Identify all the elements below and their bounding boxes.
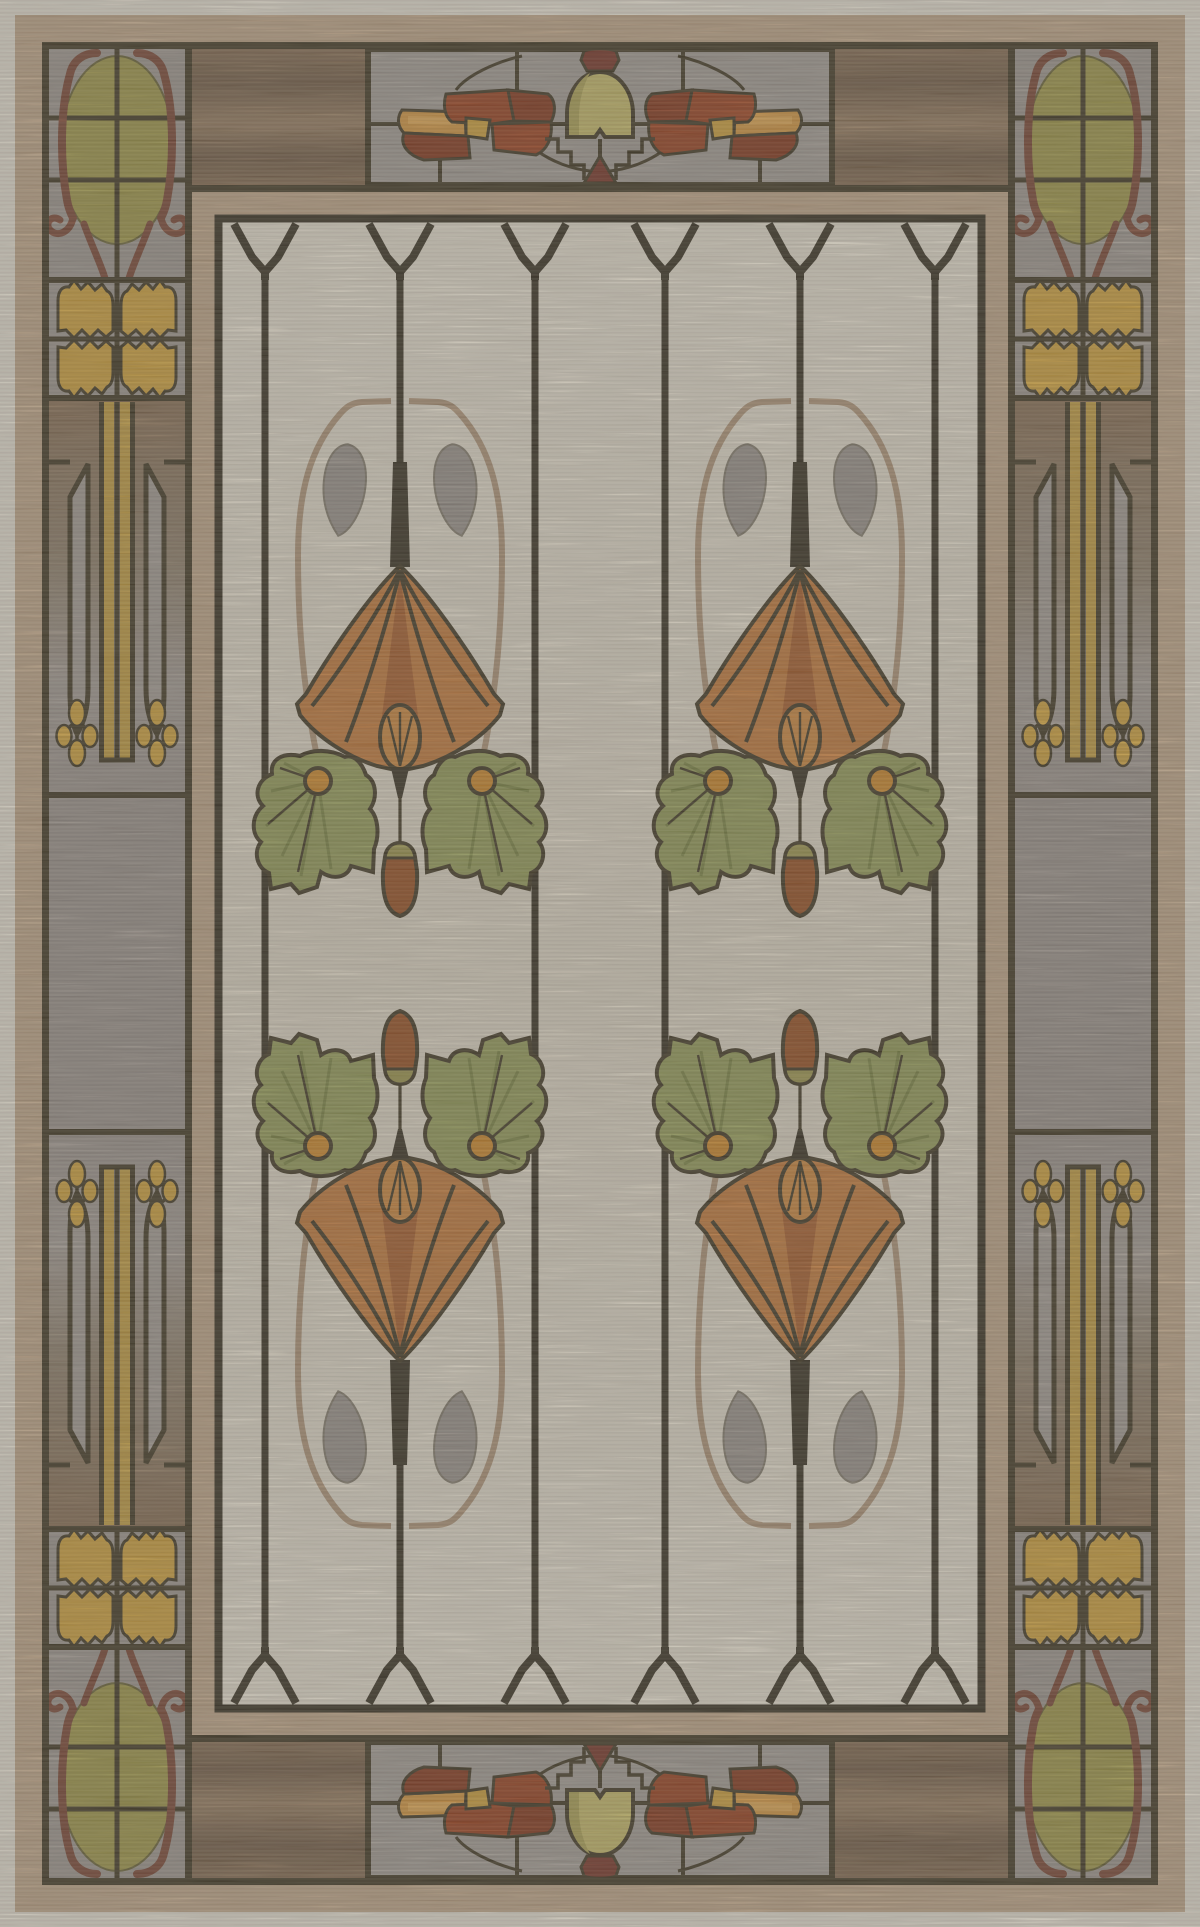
weave-texture (0, 0, 1200, 1927)
rug-illustration (0, 0, 1200, 1927)
rug-photo (0, 0, 1200, 1927)
